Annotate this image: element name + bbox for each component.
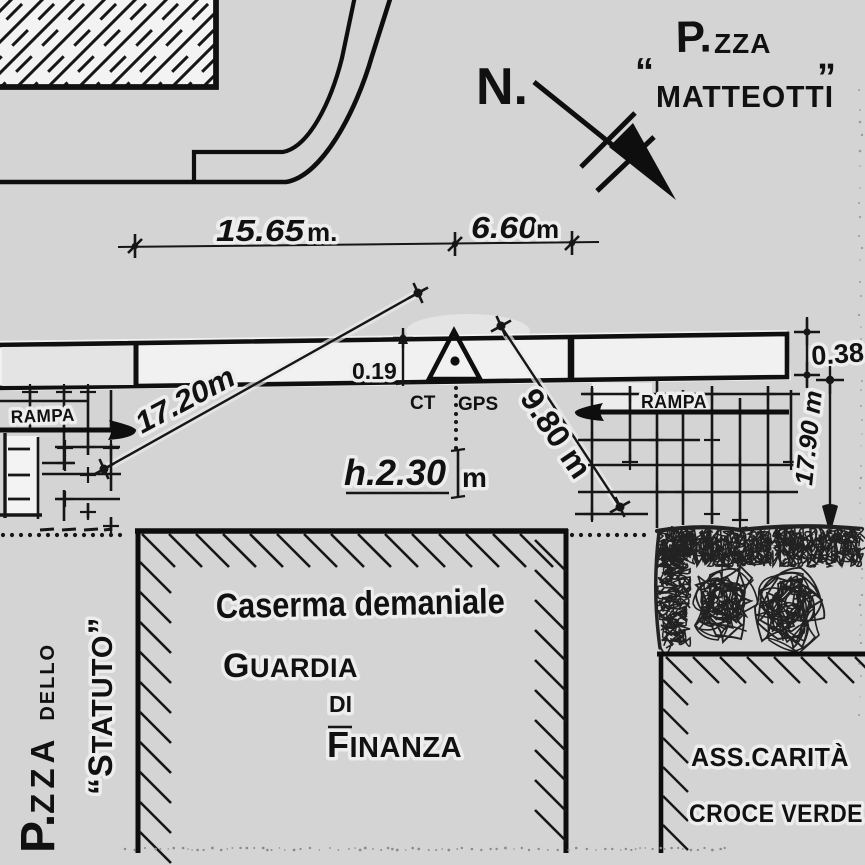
svg-text:“STATUTO”: “STATUTO” bbox=[82, 617, 120, 795]
svg-text:GPS: GPS bbox=[458, 394, 498, 415]
svg-text:ZZA: ZZA bbox=[714, 28, 771, 59]
svg-text:N.: N. bbox=[476, 58, 528, 116]
svg-text:CROCE VERDE: CROCE VERDE bbox=[689, 800, 863, 828]
svg-text:6.60: 6.60 bbox=[471, 210, 537, 245]
svg-text:P.: P. bbox=[675, 12, 712, 62]
svg-text:0.19: 0.19 bbox=[352, 358, 397, 384]
svg-text:ASS.CARITÀ: ASS.CARITÀ bbox=[691, 742, 849, 772]
svg-text:Caserma demaniale: Caserma demaniale bbox=[215, 582, 505, 626]
svg-text:DI: DI bbox=[329, 691, 352, 717]
svg-text:m: m bbox=[536, 214, 559, 244]
svg-text:15.65: 15.65 bbox=[216, 213, 305, 248]
svg-text:CT: CT bbox=[410, 393, 436, 414]
svg-text:“: “ bbox=[635, 51, 654, 93]
svg-text:h.2.30: h.2.30 bbox=[344, 452, 446, 493]
svg-text:m.: m. bbox=[307, 217, 337, 247]
svg-text:RAMPA: RAMPA bbox=[641, 392, 707, 412]
svg-text:0.38: 0.38 bbox=[810, 337, 865, 371]
svg-text:m: m bbox=[462, 462, 487, 493]
svg-text:MATTEOTTI: MATTEOTTI bbox=[656, 79, 834, 114]
svg-text:GUARDIA: GUARDIA bbox=[223, 647, 358, 685]
svg-text:RAMPA: RAMPA bbox=[10, 405, 75, 427]
svg-text:”: ” bbox=[817, 57, 836, 99]
